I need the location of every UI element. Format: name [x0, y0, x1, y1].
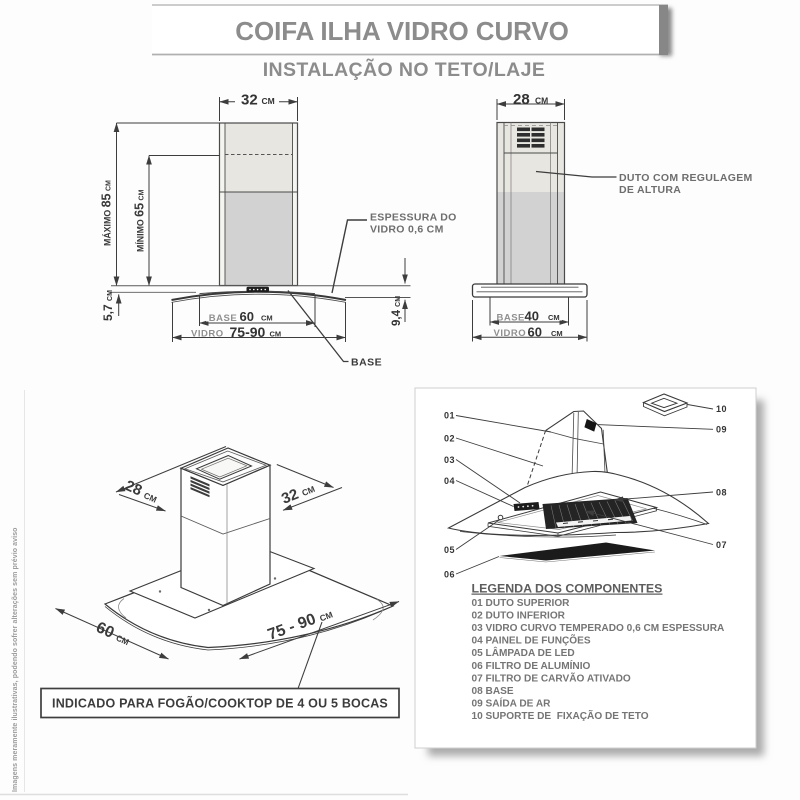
- svg-text:04: 04: [444, 476, 455, 486]
- svg-text:05 LÂMPADA DE LED: 05 LÂMPADA DE LED: [472, 646, 575, 659]
- svg-text:DE ALTURA: DE ALTURA: [619, 184, 681, 196]
- svg-text:INDICADO PARA FOGÃO/COOKTOP DE: INDICADO PARA FOGÃO/COOKTOP DE 4 OU 5 BO…: [52, 696, 388, 711]
- svg-text:05: 05: [444, 545, 455, 555]
- svg-text:08 BASE: 08 BASE: [472, 686, 514, 697]
- svg-text:60: 60: [528, 324, 542, 339]
- svg-text:07 FILTRO DE CARVÃO ATIVADO: 07 FILTRO DE CARVÃO ATIVADO: [472, 671, 631, 684]
- svg-text:CM: CM: [261, 314, 273, 323]
- svg-text:01 DUTO SUPERIOR: 01 DUTO SUPERIOR: [472, 598, 571, 609]
- svg-text:CM: CM: [270, 329, 282, 338]
- svg-text:Imagens meramente ilustrativas: Imagens meramente ilustrativas, podendo …: [12, 527, 19, 792]
- svg-text:ESPESSURA DO: ESPESSURA DO: [370, 212, 457, 224]
- svg-text:BASE: BASE: [497, 312, 525, 323]
- svg-text:10: 10: [716, 404, 727, 414]
- svg-text:02: 02: [444, 434, 455, 444]
- svg-text:03 VIDRO CURVO TEMPERADO 0,6 C: 03 VIDRO CURVO TEMPERADO 0,6 CM ESPESSUR…: [472, 623, 725, 634]
- svg-text:COIFA ILHA VIDRO CURVO: COIFA ILHA VIDRO CURVO: [235, 16, 568, 46]
- svg-text:VIDRO: VIDRO: [494, 328, 527, 339]
- svg-text:DUTO COM REGULAGEM: DUTO COM REGULAGEM: [619, 172, 753, 184]
- svg-text:08: 08: [716, 488, 727, 498]
- svg-text:75-90: 75-90: [230, 324, 266, 340]
- svg-text:10 SUPORTE DE FIXAÇÃO DE TETO: 10 SUPORTE DE FIXAÇÃO DE TETO: [472, 709, 649, 722]
- svg-text:BASE: BASE: [209, 313, 237, 324]
- svg-text:VIDRO 0,6 CM: VIDRO 0,6 CM: [370, 224, 444, 236]
- svg-text:CM: CM: [535, 96, 548, 106]
- svg-text:60: 60: [240, 309, 254, 324]
- svg-text:07: 07: [716, 540, 727, 550]
- svg-text:09: 09: [716, 425, 727, 435]
- svg-text:CM: CM: [548, 313, 560, 322]
- svg-text:03: 03: [444, 455, 455, 465]
- svg-text:06: 06: [444, 570, 455, 580]
- svg-text:VIDRO: VIDRO: [191, 328, 224, 339]
- svg-text:32: 32: [241, 92, 258, 109]
- svg-text:INSTALAÇÃO NO TETO/LAJE: INSTALAÇÃO NO TETO/LAJE: [263, 58, 546, 81]
- svg-text:04 PAINEL DE FUNÇÕES: 04 PAINEL DE FUNÇÕES: [472, 634, 591, 647]
- svg-text:40: 40: [525, 309, 539, 324]
- svg-text:09 SAÍDA DE AR: 09 SAÍDA DE AR: [472, 697, 552, 710]
- svg-text:BASE: BASE: [351, 357, 382, 369]
- svg-text:LEGENDA DOS COMPONENTES: LEGENDA DOS COMPONENTES: [472, 582, 663, 596]
- svg-text:CM: CM: [551, 329, 563, 338]
- svg-text:CM: CM: [262, 96, 275, 106]
- svg-text:02 DUTO INFERIOR: 02 DUTO INFERIOR: [472, 610, 566, 621]
- svg-text:06 FILTRO DE ALUMÍNIO: 06 FILTRO DE ALUMÍNIO: [472, 659, 591, 672]
- svg-text:28: 28: [513, 91, 530, 108]
- svg-text:01: 01: [444, 411, 455, 421]
